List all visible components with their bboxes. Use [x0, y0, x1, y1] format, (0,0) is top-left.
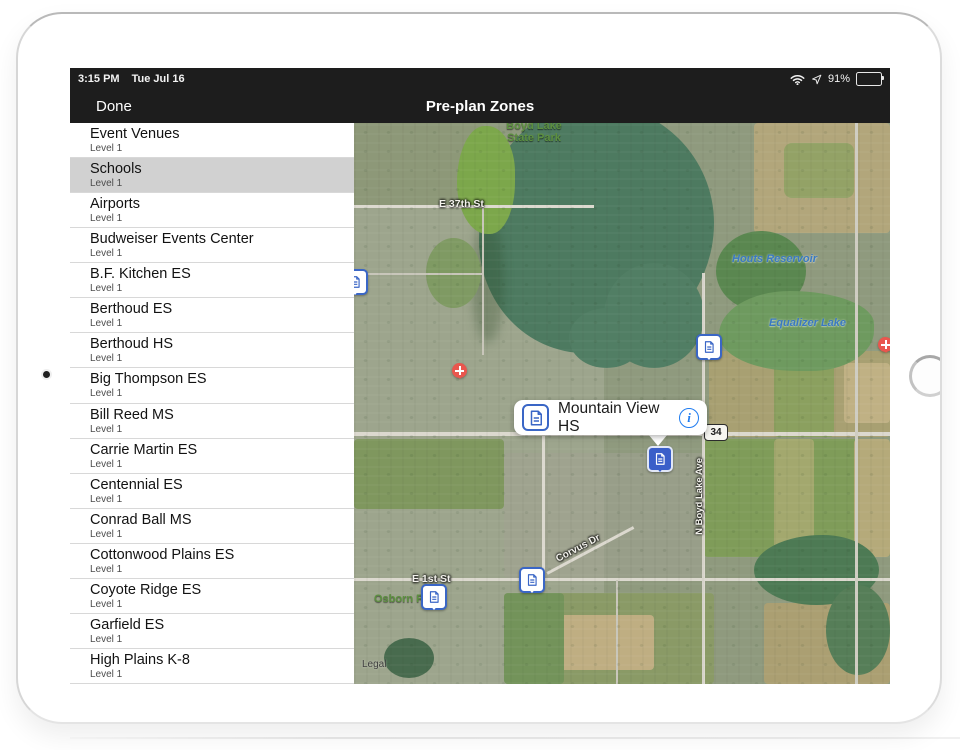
- terrain-patch: [354, 439, 504, 509]
- item-title: B.F. Kitchen ES: [90, 266, 348, 283]
- preplan-document-icon: [427, 590, 441, 604]
- list-item-bill-reed-ms[interactable]: Bill Reed MS Level 1: [70, 404, 354, 439]
- item-subtitle: Level 1: [90, 529, 348, 541]
- item-subtitle: Level 1: [90, 599, 348, 611]
- item-title: Coyote Ridge ES: [90, 582, 348, 599]
- item-subtitle: Level 1: [90, 143, 348, 155]
- item-subtitle: Level 1: [90, 213, 348, 225]
- status-bar: 3:15 PM Tue Jul 16 91%: [70, 68, 890, 90]
- list-item-coyote-ridge-es[interactable]: Coyote Ridge ES Level 1: [70, 579, 354, 614]
- terrain-patch: [504, 593, 564, 684]
- equalizer-lake-shape: [719, 291, 874, 371]
- list-item-event-venues[interactable]: Event Venues Level 1: [70, 123, 354, 158]
- list-item-centennial-es[interactable]: Centennial ES Level 1: [70, 474, 354, 509]
- label-equalizer-lake: Equalizer Lake: [769, 317, 846, 329]
- pond: [384, 638, 434, 678]
- item-title: Carrie Martin ES: [90, 442, 348, 459]
- terrain-patch: [784, 143, 854, 198]
- item-title: Berthoud ES: [90, 301, 348, 318]
- item-subtitle: Level 1: [90, 353, 348, 365]
- item-subtitle: Level 1: [90, 459, 348, 471]
- item-title: Schools: [90, 161, 348, 178]
- item-title: Budweiser Events Center: [90, 231, 348, 248]
- tablet-frame: 3:15 PM Tue Jul 16 91%: [16, 12, 942, 724]
- road-connector: [542, 434, 545, 580]
- list-item-berthoud-es[interactable]: Berthoud ES Level 1: [70, 298, 354, 333]
- item-subtitle: Level 1: [90, 564, 348, 576]
- item-title: Garfield ES: [90, 617, 348, 634]
- page-title: Pre-plan Zones: [426, 98, 534, 115]
- item-title: Airports: [90, 196, 348, 213]
- terrain-patch: [504, 453, 704, 578]
- item-subtitle: Level 1: [90, 669, 348, 681]
- item-title: Berthoud HS: [90, 336, 348, 353]
- front-camera: [43, 371, 50, 378]
- list-item-bf-kitchen-es[interactable]: B.F. Kitchen ES Level 1: [70, 263, 354, 298]
- battery-icon: [856, 72, 882, 86]
- list-item-big-thompson-es[interactable]: Big Thompson ES Level 1: [70, 368, 354, 403]
- road-right-vertical: [855, 123, 858, 684]
- surface-shadow: [70, 737, 960, 739]
- item-title: Conrad Ball MS: [90, 512, 348, 529]
- preplan-pin[interactable]: [696, 334, 722, 360]
- terrain-patch: [854, 439, 890, 557]
- zone-list: Event Venues Level 1 Schools Level 1 Air…: [70, 123, 354, 684]
- list-item-airports[interactable]: Airports Level 1: [70, 193, 354, 228]
- label-n-boyd-lake-ave: N Boyd Lake Ave: [694, 458, 705, 535]
- item-title: Centennial ES: [90, 477, 348, 494]
- preplan-document-icon: [702, 340, 716, 354]
- road-residential: [354, 273, 482, 275]
- callout-tail: [648, 434, 668, 456]
- satellite-map[interactable]: Boyd Lake State Park E 37th St Houts Res…: [354, 123, 890, 684]
- wifi-icon: [790, 74, 805, 85]
- boyd-lake-lobe: [569, 308, 644, 368]
- terrain-patch: [844, 363, 890, 423]
- lake: [826, 585, 890, 675]
- preplan-pin[interactable]: [421, 584, 447, 610]
- item-title: High Plains K-8: [90, 652, 348, 669]
- item-subtitle: Level 1: [90, 634, 348, 646]
- preplan-pin[interactable]: [519, 567, 545, 593]
- item-subtitle: Level 1: [90, 283, 348, 295]
- item-subtitle: Level 1: [90, 318, 348, 330]
- nav-bar: Done Pre-plan Zones: [70, 90, 890, 123]
- item-title: Cottonwood Plains ES: [90, 547, 348, 564]
- done-button[interactable]: Done: [90, 90, 138, 123]
- list-item-carrie-martin-es[interactable]: Carrie Martin ES Level 1: [70, 439, 354, 474]
- list-item-budweiser-events-center[interactable]: Budweiser Events Center Level 1: [70, 228, 354, 263]
- list-item-high-plains-k8[interactable]: High Plains K-8 Level 1: [70, 649, 354, 684]
- route-34-shield: 34: [704, 424, 728, 441]
- item-subtitle: Level 1: [90, 178, 348, 190]
- terrain-patch: [559, 615, 654, 670]
- list-item-berthoud-hs[interactable]: Berthoud HS Level 1: [70, 333, 354, 368]
- list-item-schools[interactable]: Schools Level 1: [70, 158, 354, 193]
- label-houts-reservoir: Houts Reservoir: [732, 253, 817, 265]
- item-title: Event Venues: [90, 126, 348, 143]
- callout-title: Mountain View HS: [558, 400, 670, 436]
- road-residential: [616, 580, 618, 684]
- item-subtitle: Level 1: [90, 248, 348, 260]
- status-time: 3:15 PM: [78, 73, 120, 85]
- item-title: Bill Reed MS: [90, 407, 348, 424]
- item-subtitle: Level 1: [90, 388, 348, 400]
- item-title: Big Thompson ES: [90, 371, 348, 388]
- legal-link[interactable]: Legal: [362, 659, 386, 670]
- app-screen: 3:15 PM Tue Jul 16 91%: [70, 68, 890, 684]
- battery-percent: 91%: [828, 73, 850, 85]
- preplan-document-icon: [354, 275, 362, 289]
- list-item-cottonwood-plains-es[interactable]: Cottonwood Plains ES Level 1: [70, 544, 354, 579]
- preplan-badge-icon: [522, 404, 549, 431]
- road-residential: [482, 207, 484, 355]
- map-callout[interactable]: Mountain View HS: [514, 400, 707, 435]
- hospital-marker[interactable]: [452, 363, 467, 378]
- item-subtitle: Level 1: [90, 494, 348, 506]
- item-subtitle: Level 1: [90, 424, 348, 436]
- hospital-marker[interactable]: [878, 337, 890, 352]
- list-item-conrad-ball-ms[interactable]: Conrad Ball MS Level 1: [70, 509, 354, 544]
- status-date: Tue Jul 16: [132, 73, 185, 85]
- label-boyd-lake-state-park: Boyd Lake State Park: [494, 123, 574, 144]
- home-button[interactable]: [909, 355, 942, 397]
- preplan-pin[interactable]: [354, 269, 368, 295]
- preplan-document-icon: [525, 573, 539, 587]
- label-e-37th-st: E 37th St: [439, 198, 484, 210]
- list-item-garfield-es[interactable]: Garfield ES Level 1: [70, 614, 354, 649]
- info-icon[interactable]: [679, 408, 699, 428]
- location-arrow-icon: [811, 74, 822, 85]
